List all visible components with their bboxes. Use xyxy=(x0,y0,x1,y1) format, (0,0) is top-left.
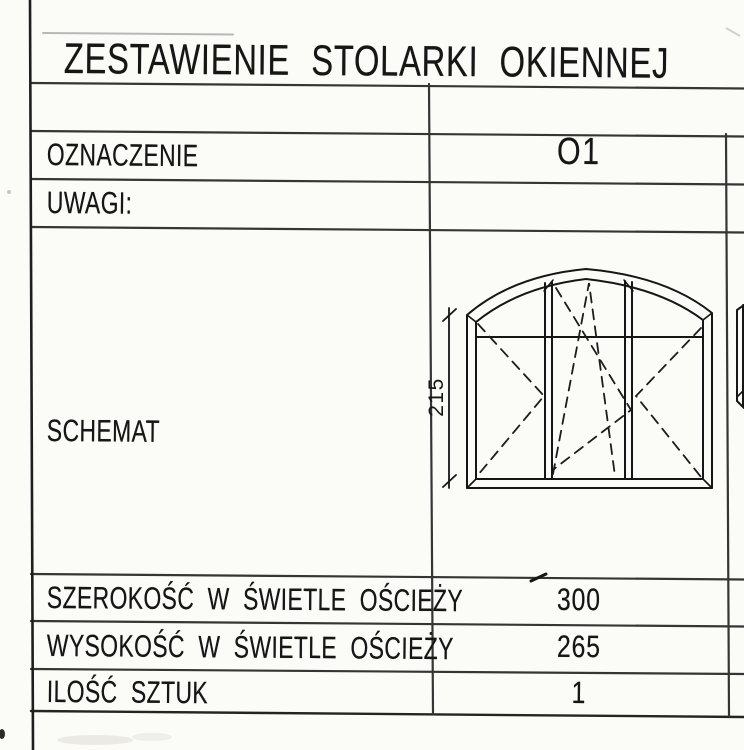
row-label-ilosc-sztuk: ILOŚĆ SZTUK xyxy=(47,676,208,708)
row-label-wysokosc: WYSOKOŚĆ W ŚWIETLE OŚCIEŻY xyxy=(47,630,454,664)
row-label-szerokosc: SZEROKOŚĆ W ŚWIETLE OŚCIEŻY xyxy=(47,582,463,616)
sash-opening-symbols xyxy=(478,283,701,477)
row-value-ilosc-sztuk: 1 xyxy=(460,676,697,709)
row-value-wysokosc: 265 xyxy=(460,630,697,663)
row-value-oznaczenie: O1 xyxy=(460,132,697,172)
row-value-szerokosc: 300 xyxy=(460,583,697,616)
page-title: ZESTAWIENIE STOLARKI OKIENNEJ xyxy=(64,38,670,86)
row-label-uwagi: UWAGI: xyxy=(47,187,133,219)
window-schematic-drawing xyxy=(467,269,712,488)
row-label-schemat: SCHEMAT xyxy=(47,415,160,447)
scanned-window-schedule-sheet: 215 ZESTAWIENIE STOLARKI OKIENNEJ OZNACZ… xyxy=(0,0,744,750)
row-label-oznaczenie: OZNACZENIE xyxy=(47,139,199,171)
schematic-dimension-label: 215 xyxy=(425,377,448,417)
adjacent-column-drawing-fragment xyxy=(737,305,744,408)
